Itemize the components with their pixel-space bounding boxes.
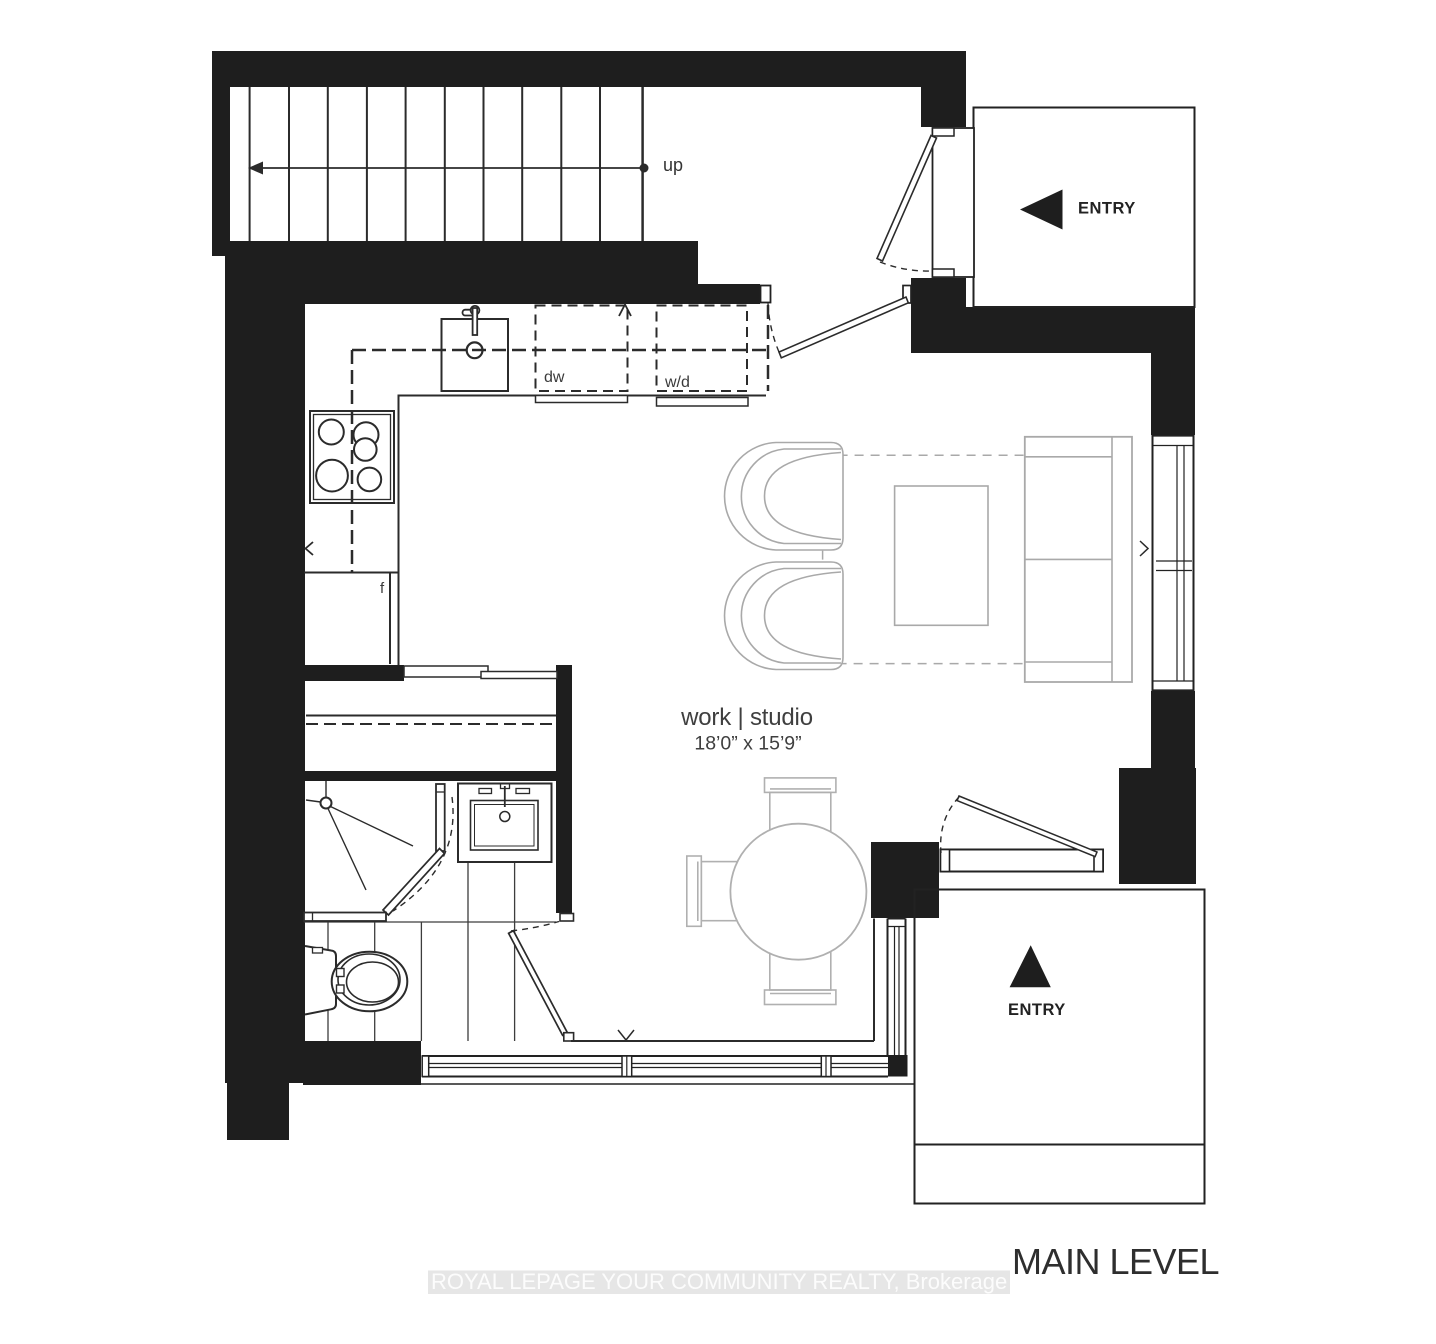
svg-text:18’0” x 15’9”: 18’0” x 15’9” — [694, 733, 801, 755]
svg-text:MAIN LEVEL: MAIN LEVEL — [1012, 1241, 1219, 1282]
svg-text:w/d: w/d — [664, 374, 690, 391]
svg-text:ROYAL LEPAGE YOUR COMMUNITY RE: ROYAL LEPAGE YOUR COMMUNITY REALTY, Brok… — [431, 1269, 1007, 1294]
svg-text:ENTRY: ENTRY — [1078, 200, 1136, 218]
svg-text:up: up — [663, 155, 683, 175]
svg-text:ENTRY: ENTRY — [1008, 1001, 1066, 1019]
svg-text:f: f — [380, 580, 385, 597]
svg-text:dw: dw — [544, 369, 565, 386]
svg-text:work | studio: work | studio — [680, 704, 813, 731]
